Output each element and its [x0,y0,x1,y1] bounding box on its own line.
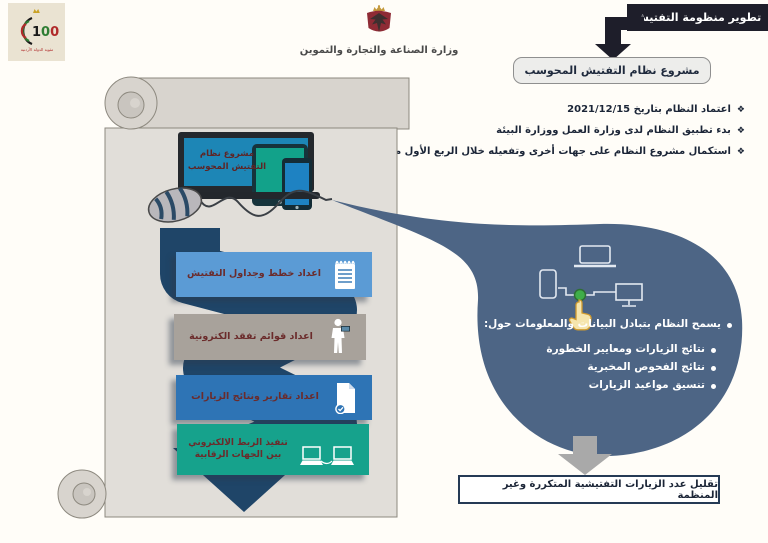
bubble-intro: يسمح النظام بتبادل البيانات والمعلومات ح… [470,318,732,330]
green-dot [575,290,586,301]
centennial-logo-graphic: 100 مئوية الدولة الأردنية [8,3,65,61]
milestone-text: بدء تطبيق النظام لدى وزارة العمل ووزارة … [496,125,731,136]
svg-text:100: 100 [32,25,59,40]
centennial-caption: مئوية الدولة الأردنية [21,47,54,52]
ministry-name: وزارة الصناعة والتجارة والتموين [296,45,462,56]
step-label: تنفيذ الربط الالكتروني بين الجهات الرقاب… [185,438,291,461]
outcome-box: تقليل عدد الزيارات التفتيشية المتكررة وغ… [458,475,720,504]
bullet-dot [711,366,716,371]
bubble-point: تنسيق مواعيد الزيارات [470,379,716,391]
slide: 100 مئوية الدولة الأردنية وزارة الصناعة … [0,0,768,543]
step-label: اعداد قوائم تفقد الكترونية [182,331,320,343]
title-badge: تطوير منظومة التفتيش [627,4,768,31]
bullet-dot [711,348,716,353]
coat-of-arms-icon [360,3,398,40]
gray-down-arrow-icon [556,436,614,476]
ministry-header: وزارة الصناعة والتجارة والتموين [296,3,462,56]
diamond-bullet-icon: ❖ [737,147,745,157]
project-box: مشروع نظام التفتيش المحوسب [513,57,711,84]
bubble-point: نتائج الفحوص المخبرية [470,361,716,373]
elbow-arrow-icon [592,14,644,62]
bubble-text: يسمح النظام بتبادل البيانات والمعلومات ح… [470,318,732,397]
diamond-bullet-icon: ❖ [737,126,745,136]
crown-icon [33,9,40,13]
step-label: اعداد تقارير ونتائج الزيارات [184,391,326,403]
milestone-text: اعتماد النظام بتاريخ 2021/12/15 [567,104,731,115]
bubble-point: نتائج الزيارات ومعايير الخطورة [470,343,716,355]
bullet-dot [711,384,716,389]
device-screen-title: مشروع نظام التفتيش المحوسب [183,148,271,174]
step-label: اعداد خطط وجداول التفتيش [184,268,324,280]
phone-icon [282,158,312,210]
diamond-bullet-icon: ❖ [737,105,745,115]
bullet-dot [727,323,732,328]
centennial-logo: 100 مئوية الدولة الأردنية [8,3,65,61]
